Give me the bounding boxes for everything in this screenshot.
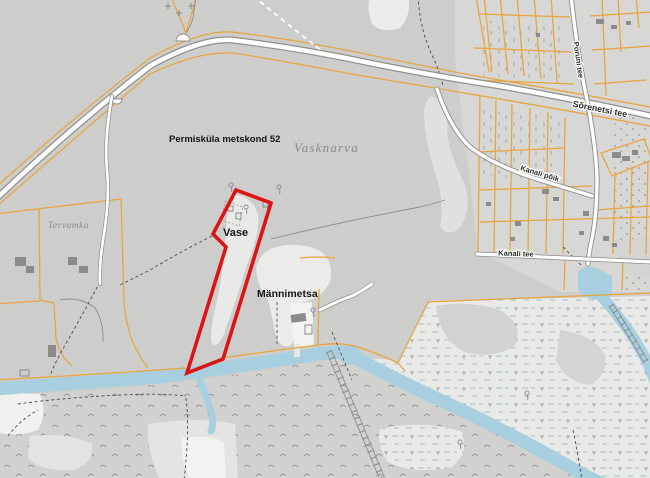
label-road-kanali-tee: Kanali tee: [498, 248, 534, 258]
open-bog: [0, 392, 44, 435]
map-canvas[interactable]: Permisküla metskond 52 Vasknarva Vase Mä…: [0, 0, 650, 478]
label-settlement-vasknarva: Vasknarva: [294, 140, 359, 155]
label-place-vase: Vase: [223, 227, 248, 239]
open-bog: [28, 435, 92, 470]
map-viewport[interactable]: Permisküla metskond 52 Vasknarva Vase Mä…: [0, 0, 650, 478]
label-place-tervamka: Tervamka: [48, 221, 89, 231]
wet-meadow-pattern: [379, 425, 464, 470]
dry-island: [615, 238, 650, 278]
label-place-mannimetsa: Männimetsa: [257, 288, 318, 300]
open-strip: [182, 437, 226, 478]
terrain-layer: [0, 0, 650, 478]
label-forest-district: Permisküla metskond 52: [169, 134, 280, 145]
pier-inlet: [294, 344, 300, 357]
